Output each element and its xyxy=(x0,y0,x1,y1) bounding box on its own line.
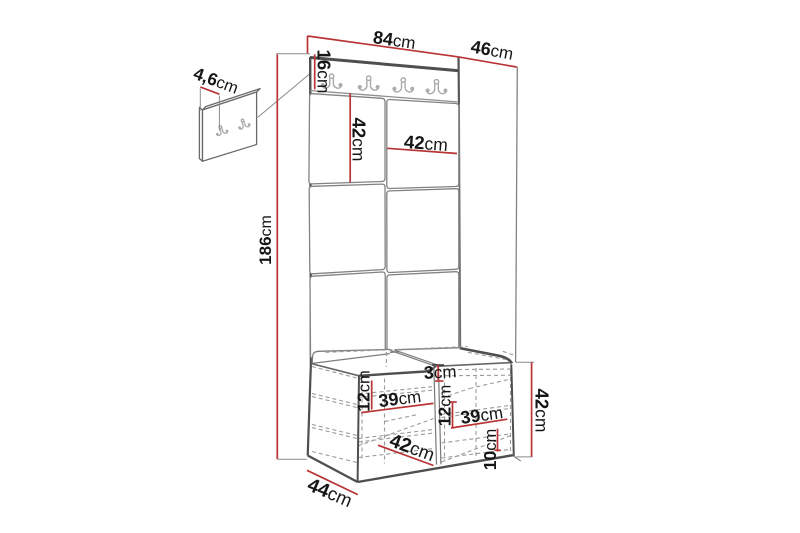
svg-text:3cm: 3cm xyxy=(423,361,457,383)
svg-text:10cm: 10cm xyxy=(480,429,500,470)
svg-text:42cm: 42cm xyxy=(349,118,370,162)
svg-text:12cm: 12cm xyxy=(354,370,374,411)
svg-text:12cm: 12cm xyxy=(435,385,455,426)
svg-text:186cm: 186cm xyxy=(256,215,275,265)
svg-text:42cm: 42cm xyxy=(532,389,553,433)
svg-text:16cm: 16cm xyxy=(314,50,335,94)
svg-text:42cm: 42cm xyxy=(403,131,448,155)
